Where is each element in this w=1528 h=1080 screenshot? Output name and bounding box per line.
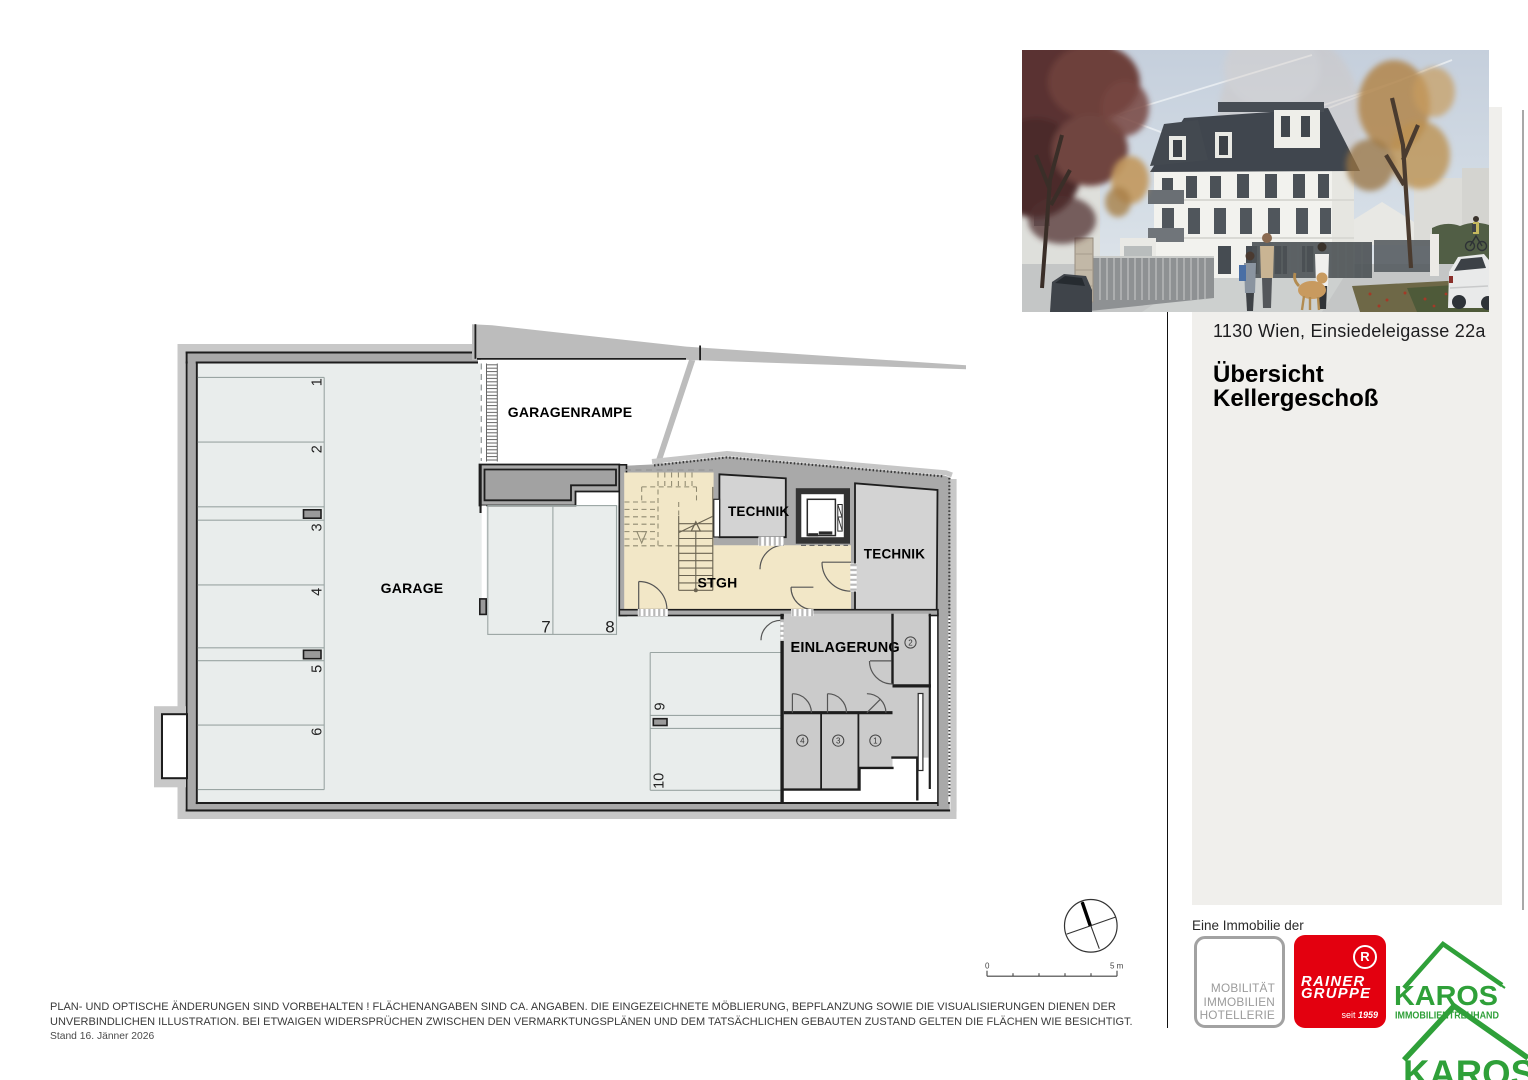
svg-text:4: 4: [310, 588, 326, 596]
svg-text:3: 3: [310, 523, 326, 531]
svg-text:TECHNIK: TECHNIK: [728, 504, 789, 519]
svg-text:0: 0: [985, 962, 990, 971]
svg-text:7: 7: [541, 618, 550, 637]
svg-text:GARAGE: GARAGE: [381, 580, 444, 596]
svg-text:6: 6: [310, 728, 326, 736]
svg-text:4: 4: [800, 737, 805, 746]
svg-text:1: 1: [310, 378, 326, 386]
svg-text:5: 5: [310, 665, 326, 673]
svg-text:3: 3: [836, 737, 841, 746]
svg-text:8: 8: [605, 618, 614, 637]
svg-text:2: 2: [310, 445, 326, 453]
svg-text:STGH: STGH: [697, 575, 737, 591]
svg-text:EINLAGERUNG: EINLAGERUNG: [791, 640, 900, 656]
svg-text:1: 1: [873, 737, 878, 746]
svg-text:2: 2: [908, 638, 913, 647]
svg-text:KAROS: KAROS: [1403, 1053, 1528, 1080]
svg-text:KAROS: KAROS: [1394, 980, 1498, 1011]
svg-text:9: 9: [652, 702, 668, 710]
svg-text:10: 10: [652, 773, 668, 789]
svg-text:5 m: 5 m: [1110, 962, 1124, 971]
svg-text:TECHNIK: TECHNIK: [864, 547, 925, 562]
svg-text:GARAGENRAMPE: GARAGENRAMPE: [508, 404, 633, 420]
